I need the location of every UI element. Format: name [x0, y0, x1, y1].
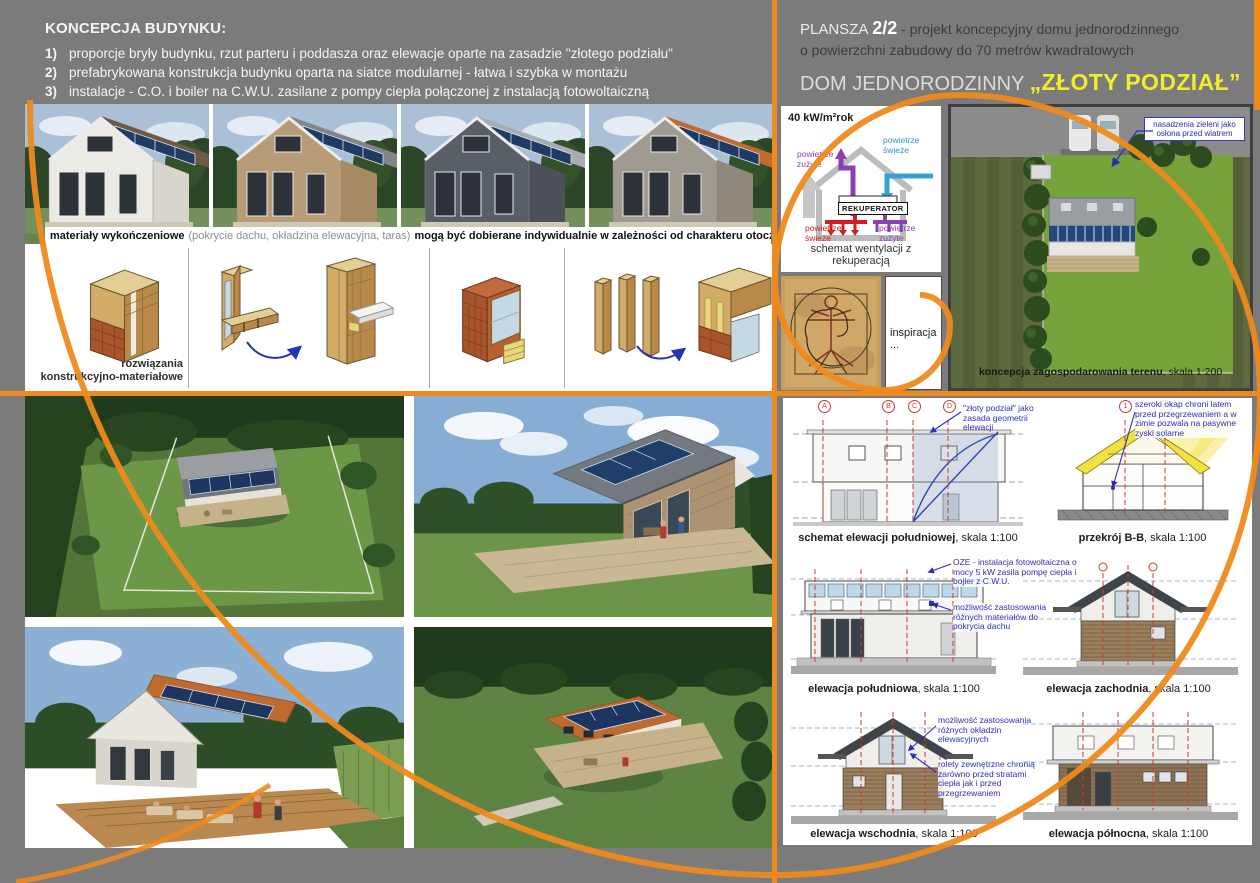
site-plan-panel: nasadzenia zieleni jako osłona przed wia…: [948, 104, 1253, 391]
axis-bubble: B: [882, 400, 895, 413]
ventilation-scheme-panel: 40 kW/m²rok powietrze zużyte powietrze ś…: [781, 106, 941, 272]
concept-header: KONCEPCJA BUDYNKU: 1) proporcje bryły bu…: [45, 20, 755, 101]
caption-zachodnia: elewacja zachodnia, skala 1:100: [1005, 683, 1252, 695]
axis-bubble: D: [943, 400, 956, 413]
materials-caption-bar: materiały wykończeniowe (pokrycie dachu,…: [45, 227, 771, 244]
concept-item: 1) proporcje bryły budynku, rzut parteru…: [45, 44, 755, 63]
construction-detail-4: [445, 259, 550, 377]
divider: [429, 248, 430, 388]
energy-rating: 40 kW/m²rok: [788, 112, 853, 124]
annotation-arrow-icon: [1101, 125, 1161, 175]
label-exhaust-top: powietrze zużyte: [797, 150, 855, 169]
label-fresh-bottom: powietrze świeże: [805, 224, 863, 243]
caption-poludniowa: elewacja południowa, skala 1:100: [783, 683, 1005, 695]
divider: [564, 248, 565, 388]
concept-item: 3) instalacje - C.O. i boiler na C.W.U. …: [45, 82, 755, 101]
axis-bubble: 1: [1119, 400, 1132, 413]
divider: [188, 248, 189, 388]
project-title-prefix: DOM JEDNORODZINNY: [800, 73, 1030, 95]
house: [177, 448, 290, 528]
project-title-name: „ZŁOTY PODZIAŁ”: [1030, 69, 1241, 95]
vitruvian-man-image: [781, 276, 881, 390]
right-edge-divider: [1254, 0, 1260, 110]
recuperator-box: REKUPERATOR: [838, 202, 908, 215]
label-exhaust-bottom: powietrze zużyte: [879, 224, 937, 243]
transform-arrow-icon: [243, 336, 307, 368]
plansza-desc1: - projekt koncepcyjny domu jednorodzinne…: [901, 21, 1179, 37]
caption-schemat: schemat elewacji południowej, skala 1:10…: [783, 532, 1033, 544]
elevations-panel: A B C D "złoty podział" jako zasada geom…: [783, 398, 1252, 845]
ventilation-caption: schemat wentylacji z rekuperacją: [781, 243, 941, 267]
caption-bold: materiały wykończeniowe: [50, 230, 185, 242]
render-aerial-2: [414, 627, 775, 848]
construction-details-panel: rozwiązania konstrukcyjno-materiałowe: [25, 244, 775, 392]
project-title: DOM JEDNORODZINNY „ZŁOTY PODZIAŁ”: [800, 69, 1250, 96]
annotation-golden-ratio: "złoty podział" jako zasada geometrii el…: [963, 404, 1041, 433]
glazing-band: [809, 584, 977, 597]
drawing-elewacja-zachodnia: [1023, 561, 1238, 683]
render-variant-1: [25, 104, 209, 243]
render-terrace: [414, 396, 775, 617]
construction-detail-3: [297, 256, 397, 381]
plansza-number: 2/2: [872, 18, 897, 38]
site-plan-caption: koncepcja zagospodarowania terenu, skala…: [951, 366, 1250, 378]
caption-wschodnia: elewacja wschodnia, skala 1:100: [783, 828, 1005, 840]
render-aerial-1: [25, 396, 404, 617]
item-number: 3): [45, 82, 69, 101]
render-variant-3: [401, 104, 585, 243]
axis-bubble: C: [908, 400, 921, 413]
label-fresh-top: powietrze świeże: [883, 136, 941, 155]
material-variant-renders: [25, 104, 775, 243]
presentation-board: KONCEPCJA BUDYNKU: 1) proporcje bryły bu…: [0, 0, 1260, 883]
item-text: proporcje bryły budynku, rzut parteru i …: [69, 44, 673, 63]
caption-polnocna: elewacja północna, skala 1:100: [1005, 828, 1252, 840]
annotation-cladding: możliwość zastosowania różnych okładzin …: [938, 716, 1033, 745]
item-number: 1): [45, 44, 69, 63]
item-number: 2): [45, 63, 69, 82]
plansza-line: PLANSZA 2/2 - projekt koncepcyjny domu j…: [800, 18, 1250, 40]
item-text: prefabrykowana konstrukcja budynku opart…: [69, 63, 627, 82]
plansza-label: PLANSZA: [800, 21, 868, 38]
axis-bubble: A: [818, 400, 831, 413]
concept-item: 2) prefabrykowana konstrukcja budynku op…: [45, 63, 755, 82]
caption-paren: (pokrycie dachu, okładzina elewacyjna, t…: [189, 230, 411, 242]
caption-przekroj: przekrój B-B, skala 1:100: [1033, 532, 1252, 544]
plansza-desc2: o powierzchni zabudowy do 70 metrów kwad…: [800, 40, 1250, 60]
exterior-renders-grid: [25, 396, 775, 848]
inspiration-label: inspiracja ...: [890, 327, 941, 351]
caption-bold: mogą być dobierane indywidualnie w zależ…: [414, 230, 771, 242]
render-variant-2: [213, 104, 397, 243]
drawing-elewacja-polnocna: [1023, 708, 1238, 830]
inspiration-box: inspiracja ...: [885, 276, 942, 390]
item-text: instalacje - C.O. i boiler na C.W.U. zas…: [69, 82, 649, 101]
construction-detail-1: [70, 258, 175, 373]
construction-detail-6: [683, 258, 775, 378]
render-variant-4: [589, 104, 773, 243]
render-deck: [25, 627, 404, 848]
transform-arrow-icon: [633, 340, 691, 368]
annotation-eaves: szeroki okap chroni latem przed przegrze…: [1135, 400, 1247, 438]
concept-heading: KONCEPCJA BUDYNKU:: [45, 20, 755, 37]
title-block: PLANSZA 2/2 - projekt koncepcyjny domu j…: [800, 18, 1250, 96]
